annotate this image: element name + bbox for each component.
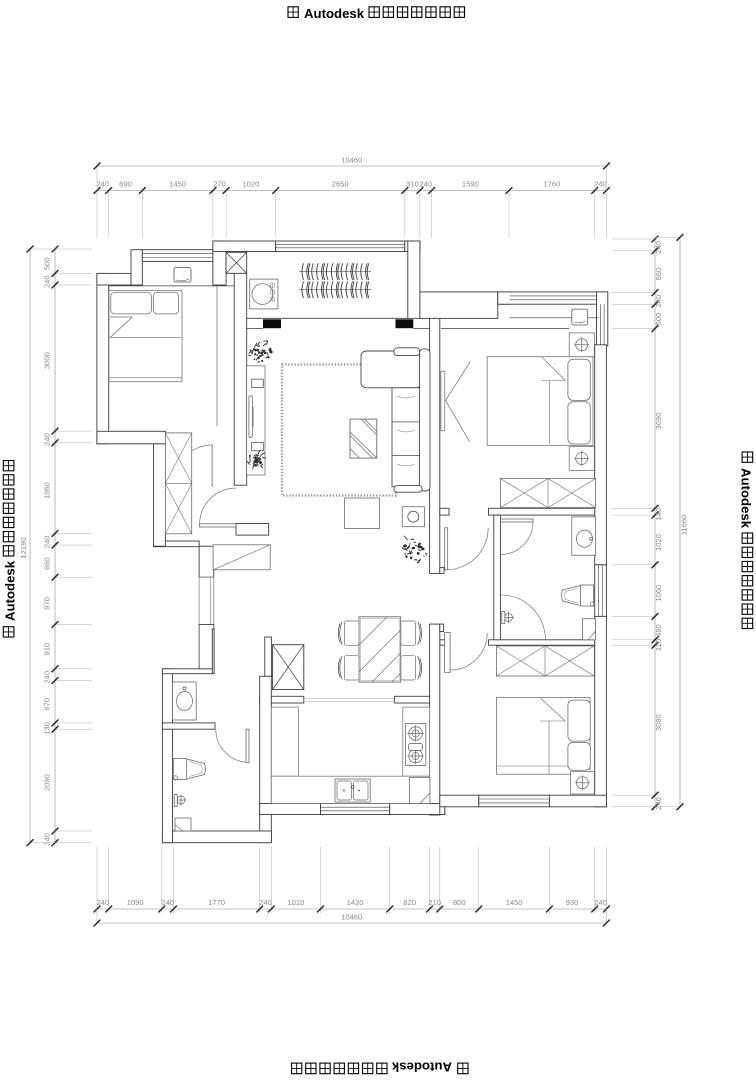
svg-text:Autodesk: Autodesk [3,560,18,621]
svg-text:240: 240 [43,833,52,846]
svg-text:1020: 1020 [242,180,259,189]
svg-text:2090: 2090 [43,774,52,791]
svg-text:210: 210 [428,898,441,907]
svg-text:970: 970 [43,597,52,610]
svg-text:10460: 10460 [341,913,362,922]
svg-text:930: 930 [566,898,579,907]
svg-text:1770: 1770 [208,898,225,907]
svg-text:660: 660 [43,557,52,570]
svg-text:1010: 1010 [287,898,304,907]
svg-text:240: 240 [43,433,52,446]
svg-text:910: 910 [43,643,52,656]
svg-text:Autodesk: Autodesk [391,1060,452,1075]
svg-text:1450: 1450 [169,180,186,189]
svg-text:310: 310 [406,180,419,189]
svg-text:240: 240 [419,180,432,189]
svg-text:10460: 10460 [341,156,362,165]
svg-text:1860: 1860 [43,482,52,499]
svg-text:110: 110 [654,639,663,651]
svg-text:500: 500 [654,313,663,326]
svg-text:240: 240 [594,180,607,189]
svg-text:820: 820 [403,898,416,907]
svg-text:240: 240 [43,535,52,548]
svg-text:240: 240 [594,898,607,907]
svg-text:480: 480 [654,624,663,637]
svg-text:240: 240 [43,671,52,684]
svg-text:1060: 1060 [654,585,663,602]
svg-text:11660: 11660 [680,515,689,536]
svg-text:3000: 3000 [43,352,52,369]
svg-text:3080: 3080 [654,714,663,731]
svg-text:240: 240 [654,797,663,810]
svg-text:1420: 1420 [347,898,364,907]
svg-text:3690: 3690 [654,413,663,430]
svg-text:1020: 1020 [654,534,663,551]
svg-text:Autodesk: Autodesk [304,6,365,21]
svg-text:1760: 1760 [543,180,560,189]
svg-text:130: 130 [43,722,52,735]
svg-text:860: 860 [654,268,663,281]
svg-text:240: 240 [259,898,272,907]
svg-text:240: 240 [161,898,174,907]
svg-text:270: 270 [213,180,226,189]
svg-text:800: 800 [453,898,466,907]
svg-text:Autodesk: Autodesk [739,468,754,529]
svg-text:1450: 1450 [506,898,523,907]
svg-text:500: 500 [43,257,52,270]
svg-text:1090: 1090 [127,898,144,907]
svg-text:240: 240 [654,241,663,254]
svg-text:2650: 2650 [332,180,349,189]
svg-text:12190: 12190 [19,537,28,558]
svg-text:240: 240 [43,275,52,288]
svg-text:870: 870 [43,698,52,711]
svg-text:240: 240 [654,295,663,308]
svg-text:690: 690 [119,180,132,189]
svg-text:240: 240 [96,180,109,189]
svg-text:140: 140 [654,508,663,521]
svg-text:240: 240 [96,898,109,907]
svg-text:1590: 1590 [462,180,479,189]
